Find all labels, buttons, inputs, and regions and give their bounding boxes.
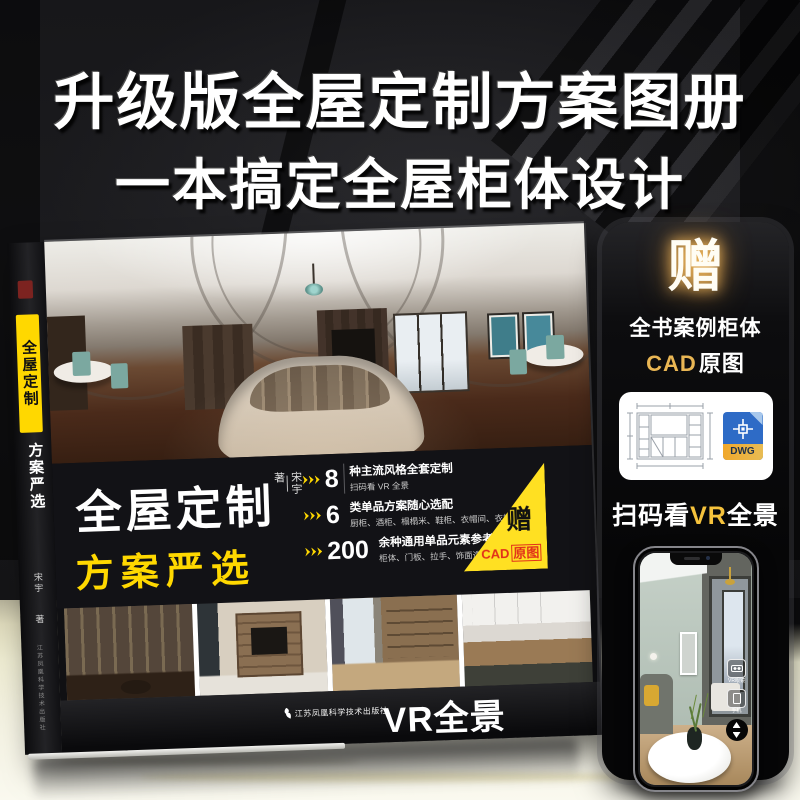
cad-suffix-text: 原图 [699, 351, 745, 376]
yellow-pillow [644, 685, 659, 706]
photo-study-tatami [324, 595, 460, 692]
scan-vr: VR [690, 502, 727, 530]
bullet-number: 200 [327, 537, 370, 563]
book-front-cover: 全屋定制 宋宇 著 方案严选 8 种主流风格全套定制 扫码看 VR 全景 [44, 223, 604, 754]
bullet-desc: 扫码看 VR 全景 [350, 478, 454, 494]
author-dash [287, 476, 289, 492]
spine-author: 宋宇 [32, 572, 46, 594]
scan-prefix: 扫码看 [612, 502, 690, 530]
publisher-block: 江苏凤凰科学技术出版社 [283, 704, 389, 720]
book-mockup: 全屋定制 方案严选 宋宇 著 江苏凤凰科学技术出版社 [7, 223, 602, 755]
cover-subtitle: 方案严选 [75, 537, 257, 598]
gift-label: 赠 [602, 236, 789, 298]
spine-author-suffix: 著 [33, 614, 46, 625]
vr-viewer-controls: VR眼镜 手机 [726, 659, 748, 741]
spine-publisher: 江苏凤凰科学技术出版社 [34, 644, 46, 732]
chair [546, 335, 564, 360]
bullet-divider [373, 535, 374, 565]
wall-lamp [650, 653, 657, 660]
vr-glasses-icon [727, 659, 746, 678]
gift-panel: 赠 全书案例柜体 CAD原图 [602, 222, 789, 780]
product-ad-image: 升级版全屋定制方案图册 一本搞定全屋柜体设计 全屋定制 方案严选 宋宇 著 江苏… [0, 0, 800, 800]
cad-text: CAD [646, 351, 697, 376]
bullet-item: 8 种主流风格全套定制 扫码看 VR 全景 [302, 459, 473, 495]
photo-tv-wall [192, 599, 328, 696]
spine-subtitle: 方案严选 [24, 442, 47, 511]
photo-kitchen [457, 590, 593, 687]
bullet-text: 种主流风格全套定制 扫码看 VR 全景 [349, 460, 453, 494]
spine-title: 全屋定制 [18, 339, 41, 408]
picture-frame [680, 632, 697, 675]
phone-mode-label: 手机 [727, 708, 746, 714]
bullet-text: 类单品方案随心选配 厨柜、酒柜、榻榻米、鞋柜、衣帽间、衣柜 [349, 494, 511, 530]
chevrons-icon [303, 475, 321, 485]
phoenix-logo-icon [283, 708, 292, 720]
cover-panorama-photo [44, 223, 591, 464]
headline-line1: 升级版全屋定制方案图册 [0, 52, 800, 141]
cover-bullets: 8 种主流风格全套定制 扫码看 VR 全景 6 类单品方案随心选配 [302, 459, 476, 573]
vr-panorama-label: VR全景 [382, 688, 506, 743]
cad-drawing-card: DWG [619, 392, 773, 480]
bullet-divider [343, 464, 345, 494]
gyro-toggle-icon [726, 719, 748, 741]
cover-author-suffix: 著 [272, 472, 284, 484]
phone-screen: VR眼镜 手机 [640, 553, 752, 785]
gift-desc-line2: CAD原图 [602, 346, 789, 378]
bullet-title: 种主流风格全套定制 [349, 460, 453, 480]
ceiling-lamp [729, 567, 731, 581]
dwg-file-icon: DWG [723, 412, 763, 460]
chair [509, 349, 527, 374]
scan-suffix: 全景 [727, 502, 779, 530]
phone-mode-icon [727, 689, 746, 708]
phone-mockup: VR眼镜 手机 [633, 546, 759, 792]
gift-desc-line1: 全书案例柜体 [602, 312, 789, 342]
cad-text: CAD [481, 546, 510, 562]
chair [72, 351, 90, 376]
bullet-divider [344, 500, 345, 530]
phone-notch [670, 553, 722, 565]
cover-author-name: 宋宇 [289, 471, 302, 495]
vr-glasses-control: VR眼镜 [727, 659, 746, 684]
cad-elevation-drawing [625, 401, 721, 473]
chair [111, 363, 129, 388]
chevrons-icon [304, 511, 322, 521]
bullet-item: 6 类单品方案随心选配 厨柜、酒柜、榻榻米、鞋柜、衣帽间、衣柜 [303, 495, 474, 531]
chevrons-icon [305, 547, 323, 557]
floor-glow [157, 360, 484, 460]
cad-suffix-text: 原图 [511, 544, 542, 562]
bullet-number: 8 [324, 466, 339, 491]
publisher-name: 江苏凤凰科学技术出版社 [295, 705, 389, 719]
dwg-label: DWG [723, 444, 763, 460]
phone-mode-control: 手机 [727, 689, 746, 714]
publisher-seal-icon [18, 280, 34, 299]
spine-title-box: 全屋定制 [16, 314, 43, 433]
vr-glasses-label: VR眼镜 [727, 678, 746, 684]
photo-wardrobe [64, 604, 195, 700]
cover-title: 全屋定制 [74, 470, 276, 543]
bullet-item: 200 余种通用单品元素参考 柜体、门板、拉手、饰面造型一目了然 [305, 531, 476, 567]
cover-author: 宋宇 著 [270, 471, 304, 496]
bullet-number: 6 [325, 502, 340, 527]
scan-qr-label: 扫码看VR全景 [602, 496, 789, 532]
headline-line2: 一本搞定全屋柜体设计 [0, 140, 800, 220]
cover-title-band: 全屋定制 宋宇 著 方案严选 8 种主流风格全套定制 扫码看 VR 全景 [52, 445, 597, 609]
dwg-crosshair-icon [733, 419, 753, 439]
gift-badge-cad: CAD原图 [481, 542, 542, 563]
